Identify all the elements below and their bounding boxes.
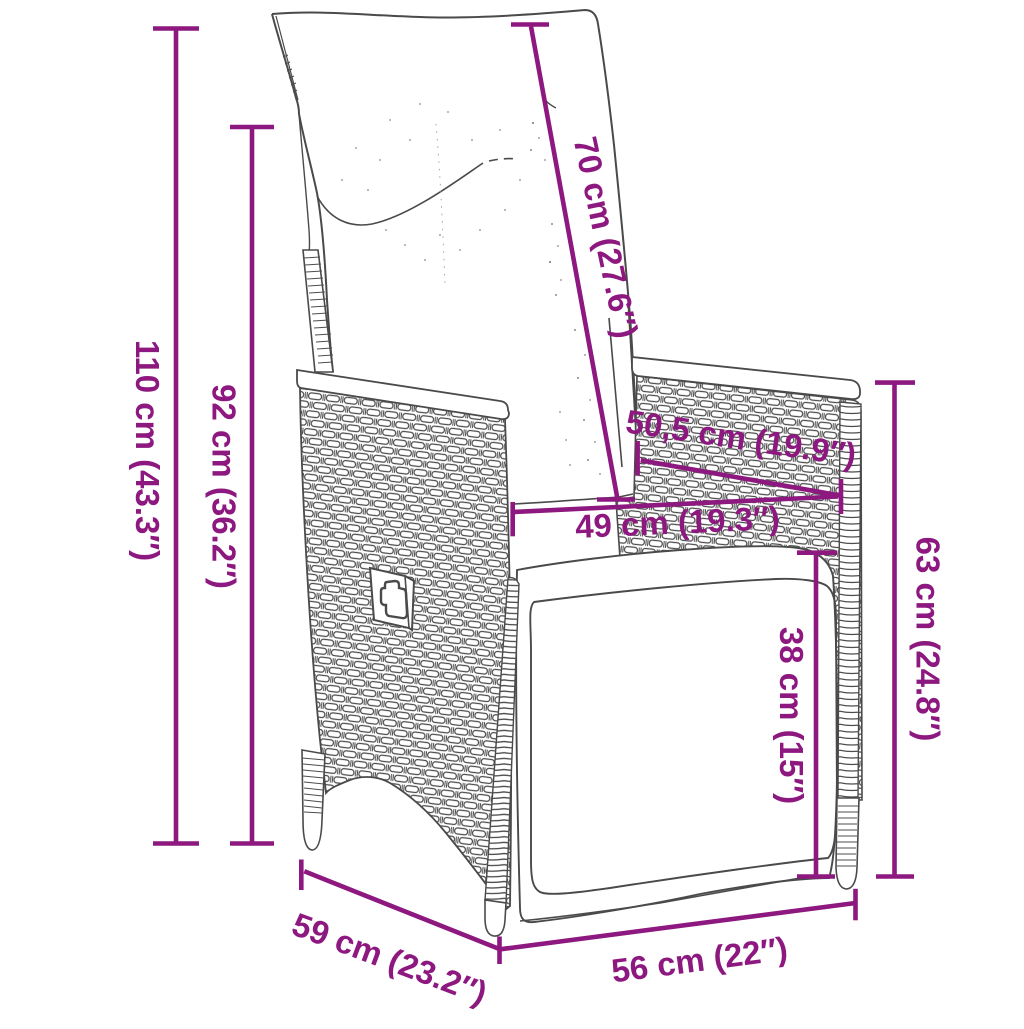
svg-text:63 cm (24.8″): 63 cm (24.8″) xyxy=(910,537,947,742)
svg-text:110 cm (43.3″): 110 cm (43.3″) xyxy=(129,340,166,561)
svg-text:38 cm (15″): 38 cm (15″) xyxy=(773,627,810,804)
svg-text:92 cm (36.2″): 92 cm (36.2″) xyxy=(206,384,243,589)
